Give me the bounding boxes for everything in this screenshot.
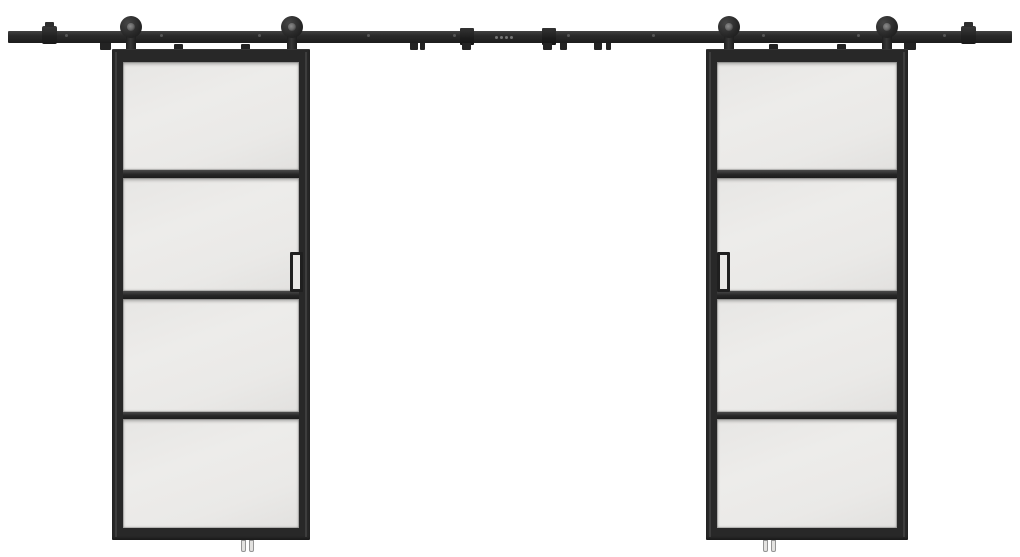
guide-pin [771,540,776,552]
glass-lite-4 [123,419,299,528]
rail-under-tab [543,43,552,50]
rail-under-tab [606,43,611,50]
anti-jump-tab [837,44,846,49]
glass-lite-1 [123,62,299,170]
floor-guide-left [241,540,254,553]
roller-hub [288,23,296,31]
rail-under-tab [410,43,418,50]
sliding-rail-bar [8,31,1012,43]
glass-lite-4 [717,419,897,528]
rail-under-tab [594,43,602,50]
rail-center-marks [495,36,498,39]
door-muntin [717,291,897,299]
door-muntin [123,291,299,299]
anti-jump-tab [241,44,250,49]
rail-under-tab [560,43,567,50]
rail-under-tab [420,43,425,50]
roller-hub [883,23,891,31]
roller-hub [127,23,135,31]
glass-lite-2 [123,178,299,291]
rail-mounting-screws [65,34,68,37]
glass-lite-2 [717,178,897,291]
rail-under-tab [462,43,471,50]
door-muntin [717,170,897,178]
barn-door-right [706,49,908,540]
anti-jump-tab [769,44,778,49]
roller-hub [725,23,733,31]
rail-end-stop-left [42,26,57,44]
door-muntin [123,412,299,419]
barn-door-left [112,49,310,540]
guide-pin [249,540,254,552]
glass-lite-3 [123,299,299,412]
glass-lite-3 [717,299,897,412]
glass-lite-1 [717,62,897,170]
product-image [0,0,1020,557]
anti-jump-tab [174,44,183,49]
rail-end-stop-right [961,26,976,44]
rail-under-tab [100,43,111,50]
floor-guide-right [763,540,776,553]
door-handle [717,252,730,292]
door-handle [290,252,303,292]
door-muntin [123,170,299,178]
guide-pin [763,540,768,552]
door-muntin [717,412,897,419]
guide-pin [241,540,246,552]
